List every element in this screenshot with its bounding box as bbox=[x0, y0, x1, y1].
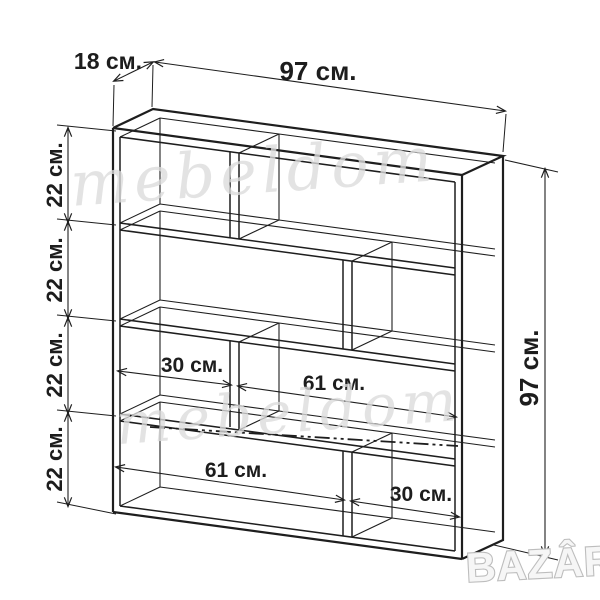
width-dimension-label: 97 см. bbox=[279, 56, 356, 86]
row2-height-label: 22 см. bbox=[42, 237, 67, 302]
height-dimension-label: 97 см. bbox=[514, 329, 544, 406]
row4-right-width-label: 30 см. bbox=[390, 483, 452, 506]
watermark-bazar-logo: BAZÂR bbox=[465, 537, 600, 591]
row1-height-label: 22 см. bbox=[42, 142, 67, 207]
row4-height-label: 22 см. bbox=[42, 426, 67, 491]
row3-left-width-label: 30 см. bbox=[161, 354, 223, 377]
furniture-technical-drawing: 18 см. 97 см. 97 см. 22 см. 22 см. 22 см… bbox=[0, 0, 600, 600]
row4-left-width-label: 61 см. bbox=[205, 459, 267, 482]
drawing-canvas: 18 см. 97 см. 97 см. 22 см. 22 см. 22 см… bbox=[0, 0, 600, 600]
watermark-mebeldom-bottom: mebeldom bbox=[113, 366, 463, 458]
depth-dimension-label: 18 см. bbox=[74, 48, 142, 74]
row3-height-label: 22 см. bbox=[42, 332, 67, 397]
